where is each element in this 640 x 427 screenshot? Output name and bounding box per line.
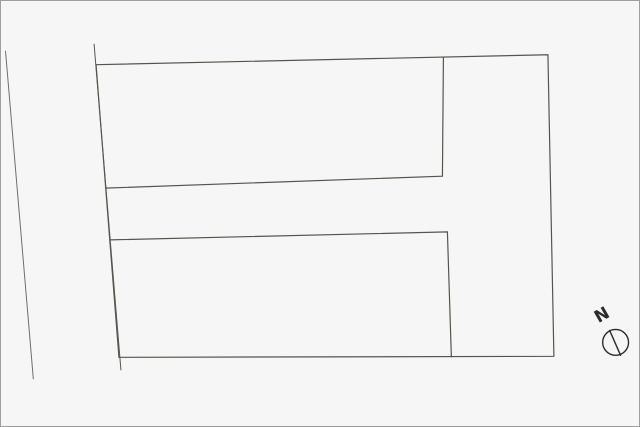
upper-lot-divider-line [105, 57, 443, 188]
north-arrow: N [591, 302, 629, 355]
lower-lot-divider-line [110, 232, 451, 357]
compass-needle-icon [610, 330, 621, 355]
parcel-outline [96, 55, 554, 358]
site-plan-drawing: N [1, 1, 639, 426]
road-edge-line [5, 51, 33, 379]
north-label: N [591, 302, 613, 326]
site-plan-canvas: N [0, 0, 640, 427]
